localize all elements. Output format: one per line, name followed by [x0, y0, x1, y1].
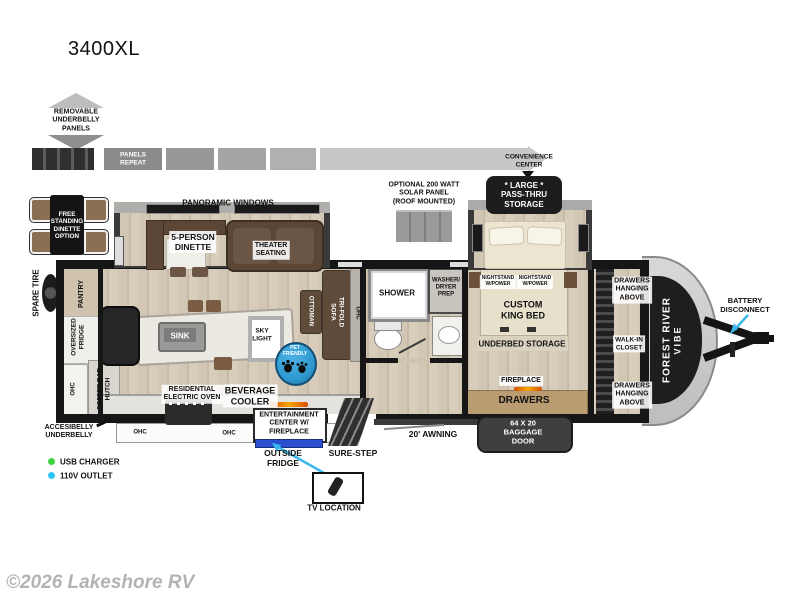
bath-left-wall	[360, 264, 366, 416]
panel-segment	[270, 148, 316, 170]
washer-dryer-label: WASHER/ DRYER PREP	[432, 277, 460, 298]
wall-window	[338, 262, 362, 267]
shower-label: SHOWER	[379, 288, 415, 297]
free-standing-dinette-label: FREE STANDING DINETTE OPTION	[51, 211, 83, 241]
pillow	[527, 226, 563, 246]
oven-label: RESIDENTIAL ELECTRIC OVEN	[162, 385, 223, 404]
oversized-fridge-label: OVERSIZED FRIDGE	[70, 318, 85, 356]
brand-line1: FOREST RIVER	[662, 297, 673, 383]
recliner-chair	[100, 306, 140, 366]
pet-friendly-label: PET FRIENDLY	[283, 346, 308, 358]
sofa-ohc-label: OHC	[353, 306, 360, 319]
sink-label: SINK	[170, 331, 189, 340]
sure-step-label: SURE-STEP	[329, 448, 378, 458]
bath-right-wall	[462, 264, 468, 416]
outlet-110v-dot	[48, 472, 55, 479]
tv-location-label: TV LOCATION	[307, 503, 361, 512]
outlet-110v-label: 110V OUTLET	[60, 471, 112, 480]
ohc-bottom-label: OHC	[133, 429, 146, 436]
floorplan-canvas: 3400XL REMOVABLE UNDERBELLY PANELS PANEL…	[0, 0, 800, 600]
usb-charger-label: USB CHARGER	[60, 457, 120, 466]
island-stool	[214, 357, 232, 370]
convenience-center-label: CONVENIENCE CENTER	[505, 153, 553, 168]
pillow	[489, 226, 525, 246]
usb-charger-dot	[48, 458, 55, 465]
dinette-chair	[84, 198, 108, 222]
bedroom-side-window	[578, 224, 589, 252]
watermark: ©2026 Lakeshore RV	[6, 572, 194, 594]
bed-outlet	[500, 327, 509, 332]
solar-panel-graphic	[396, 210, 452, 242]
spare-tire-label: SPARE TIRE	[31, 269, 40, 316]
walk-in-closet-label: WALK-IN CLOSET	[613, 335, 645, 352]
island-stool	[188, 300, 203, 312]
slide-side-window	[114, 236, 124, 266]
ottoman-label: OTTOMAN	[306, 296, 313, 326]
drawers-hanging-above-bottom-label: DRAWERS HANGING ABOVE	[612, 382, 652, 409]
dinette-label: 5-PERSON DINETTE	[169, 231, 216, 253]
accessibelly-label: ACCESIBELLY UNDERBELLY	[45, 424, 94, 441]
dinette-chair	[192, 267, 208, 277]
outside-fridge-label: OUTSIDE FRIDGE	[264, 448, 302, 468]
panel-segment	[218, 148, 266, 170]
nightstand-right-label: NIGHTSTAND W/POWER	[517, 275, 553, 289]
bedroom-drawers-label: DRAWERS	[498, 395, 549, 407]
toilet-tank	[374, 321, 402, 331]
nightstand	[564, 272, 577, 288]
nightstand-left-label: NIGHTSTAND W/POWER	[480, 275, 516, 289]
entertainment-center-label: ENTERTAINMENT CENTER W/ FIREPLACE	[259, 412, 318, 437]
dinette-booth-bench	[146, 220, 164, 270]
drawers-hanging-above-top-label: DRAWERS HANGING ABOVE	[612, 277, 652, 304]
ohc-bottom-label: OHC	[222, 430, 235, 437]
panoramic-windows-label: PANORAMIC WINDOWS	[182, 198, 273, 207]
bedroom-fireplace-label: FIREPLACE	[499, 376, 543, 386]
panel-segment-long	[320, 148, 528, 170]
pass-thru-label: * LARGE * PASS-THRU STORAGE	[501, 181, 547, 209]
bedroom-fireplace-flame	[514, 387, 542, 391]
king-bed-label: CUSTOM KING BED	[501, 299, 545, 320]
sky-light-label: SKY LIGHT	[252, 327, 272, 342]
brand-line2: VIBE	[673, 297, 683, 383]
bedroom-closet-wall	[588, 264, 594, 416]
underbed-storage-label: UNDERBED STORAGE	[479, 339, 566, 348]
paw-prints-icon	[280, 358, 310, 374]
panel-segment-striped	[32, 148, 94, 170]
dinette-chair	[170, 267, 186, 277]
bedroom-side-window	[472, 224, 483, 252]
ohc-left-label: OHC	[70, 382, 77, 395]
solar-panel-label: OPTIONAL 200 WATT SOLAR PANEL (ROOF MOUN…	[389, 182, 460, 207]
panels-repeat-label: PANELS REPEAT	[120, 151, 146, 166]
island-stool	[206, 300, 221, 312]
removable-underbelly-label: REMOVABLE UNDERBELLY PANELS	[52, 109, 99, 134]
baggage-door-label: 64 X 20 BAGGAGE DOOR	[504, 420, 543, 447]
panel-segment	[166, 148, 214, 170]
chevron-up-icon	[48, 93, 104, 108]
rear-wall	[56, 260, 64, 423]
brand-logo: FOREST RIVER VIBE	[662, 297, 683, 383]
tri-fold-sofa-label: TRI-FOLD SOFA	[329, 297, 344, 327]
beverage-cooler-label: BEVERAGE COOLER	[223, 384, 278, 407]
pantry-label: PANTRY	[78, 280, 86, 308]
bed-outlet	[527, 327, 536, 332]
battery-disconnect-arrow	[726, 312, 752, 338]
bath-sink-bowl	[438, 326, 460, 344]
toilet	[374, 328, 402, 350]
coffee-bar-hutch-label: COFFEE BAR HUTCH	[96, 368, 111, 410]
bath-door-gap	[398, 358, 430, 363]
dinette-chair	[84, 230, 108, 254]
awning-label: 20' AWNING	[409, 429, 457, 439]
theater-seating-label: THEATER SEATING	[253, 241, 290, 260]
page-title: 3400XL	[68, 38, 140, 62]
